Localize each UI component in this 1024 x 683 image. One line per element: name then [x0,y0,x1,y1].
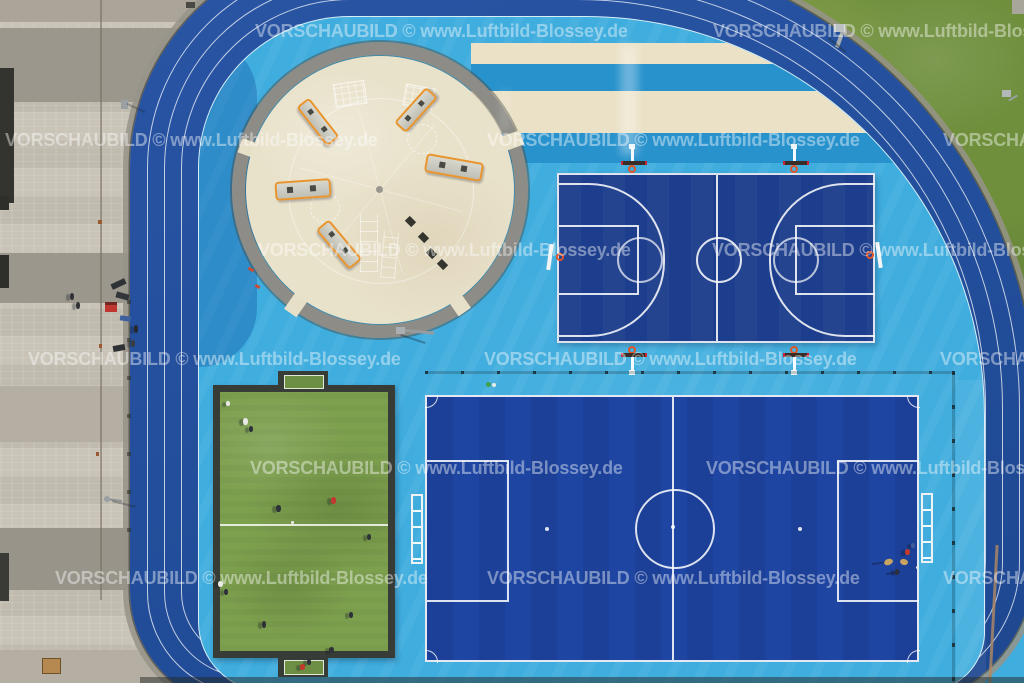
painted-ladder [360,214,378,272]
mini-soccer-pitch [213,385,395,658]
mini-goal [284,375,324,389]
free-throw-circle [773,237,819,283]
person [276,505,281,512]
hoop-pole [793,357,796,371]
person [367,534,371,540]
utility-cover [42,658,61,674]
path-corner [1012,0,1024,14]
plaza-center-marker [376,186,383,193]
fence [425,371,955,374]
person [249,426,253,432]
person [905,549,910,555]
light-smudge [620,45,638,155]
rust-mark [99,344,102,348]
person [911,543,915,548]
corner-arc [425,395,438,408]
center-spot [671,525,675,529]
training-cone [492,383,496,387]
penalty-box [427,460,509,602]
rust-mark [96,452,99,456]
person [307,659,311,665]
basketball-hoop [628,165,636,173]
person [243,418,248,425]
soccer-goal [411,494,423,564]
basketball-backboard [783,353,809,357]
painted-dial [407,124,437,154]
painted-grid [332,80,367,108]
basketball-hoop [790,165,798,173]
soccer-goal [921,493,933,563]
basketball-backboard [783,161,809,165]
person [300,664,305,670]
training-cone [486,382,491,387]
ball [291,521,294,524]
person [76,302,80,309]
drain-grate [186,2,195,8]
basketball-backboard [621,161,647,165]
person [70,293,74,300]
basketball-hoop [556,253,564,261]
building-edge [0,196,9,210]
fitness-station [274,178,331,201]
person [262,621,266,628]
soccer-field [425,395,919,662]
person [134,325,138,333]
basketball-court [557,173,875,343]
person [329,647,334,653]
pavement-joint-line [100,0,102,600]
corner-arc [907,650,920,663]
halfway-line [220,524,388,526]
apron-strip [956,380,986,683]
corner-arc [907,395,920,408]
building-edge [0,255,9,288]
person [895,569,899,575]
penalty-spot [545,527,549,531]
person [224,589,228,595]
person [331,497,336,504]
cargo-bike [105,302,117,312]
fence [952,371,955,683]
ball [916,566,919,569]
person [349,612,353,618]
light-smudge [500,90,510,130]
striped-apron [471,17,985,169]
curb-posts [127,300,131,560]
building-edge [0,68,14,203]
penalty-box [837,460,919,602]
penalty-spot [798,527,802,531]
basketball-hoop [866,251,874,259]
building-edge [0,553,9,601]
person [226,401,230,406]
hoop-pole [793,148,796,162]
hoop-pole [631,357,634,371]
lamp-post [1002,90,1011,97]
person [218,581,223,587]
aerial-photo-sports-complex: VORSCHAUBILD © www.Luftbild-Blossey.de V… [0,0,1024,683]
center-circle [696,237,742,283]
basketball-backboard [621,353,647,357]
boundary-wall [140,677,1024,683]
center-circle [635,489,715,569]
person [131,340,135,347]
corner-arc [425,650,438,663]
floodlight [834,24,845,32]
rust-mark [98,220,102,224]
lamp-post [104,496,110,502]
free-throw-circle [617,237,663,283]
